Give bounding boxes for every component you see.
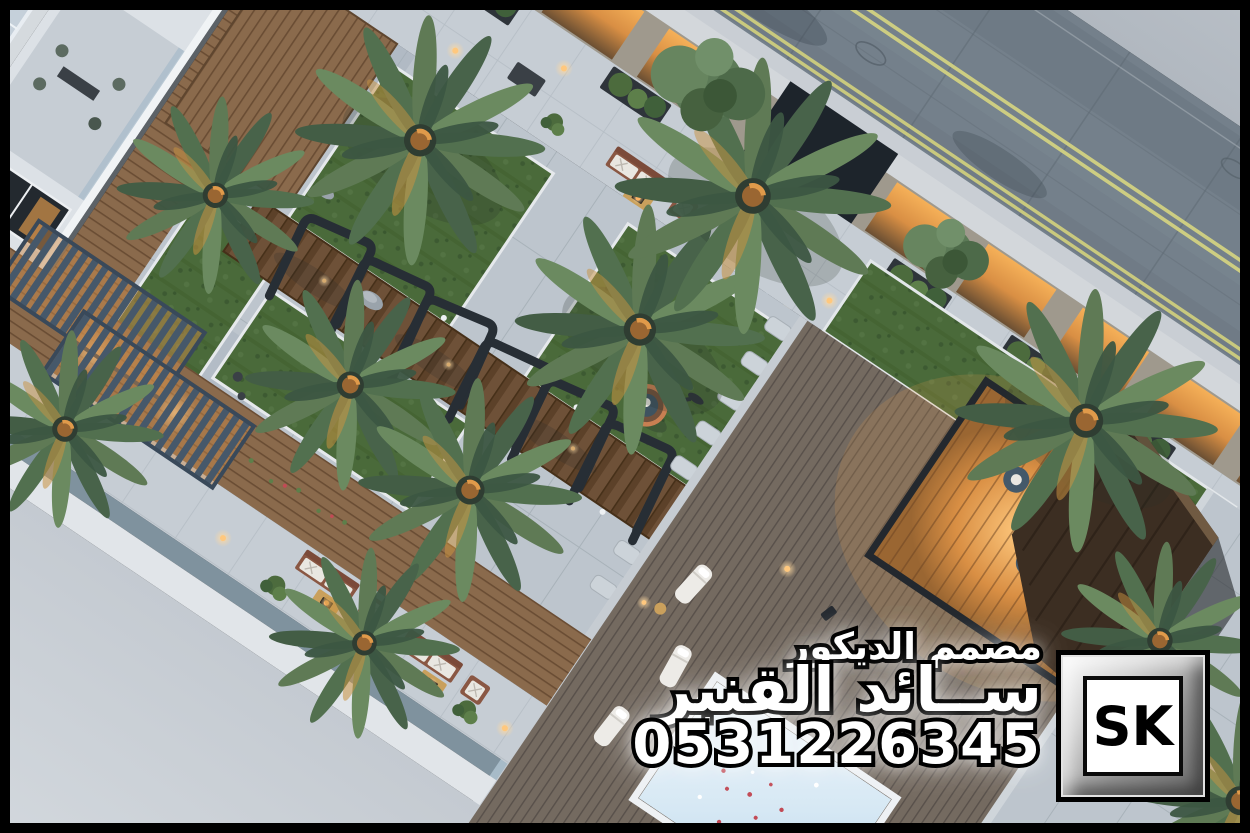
- watermark-phone-number: 0531226345 0531226345: [632, 717, 1042, 773]
- sk-logo-bevel: SK: [1061, 655, 1205, 797]
- courtyard-render: مصمم الديكور مصمم الديكور ســائد القنبر …: [0, 0, 1250, 833]
- watermark: مصمم الديكور مصمم الديكور ســائد القنبر …: [632, 628, 1042, 773]
- sk-logo-monogram: SK: [1083, 676, 1183, 776]
- sk-logo: SK: [1056, 650, 1210, 802]
